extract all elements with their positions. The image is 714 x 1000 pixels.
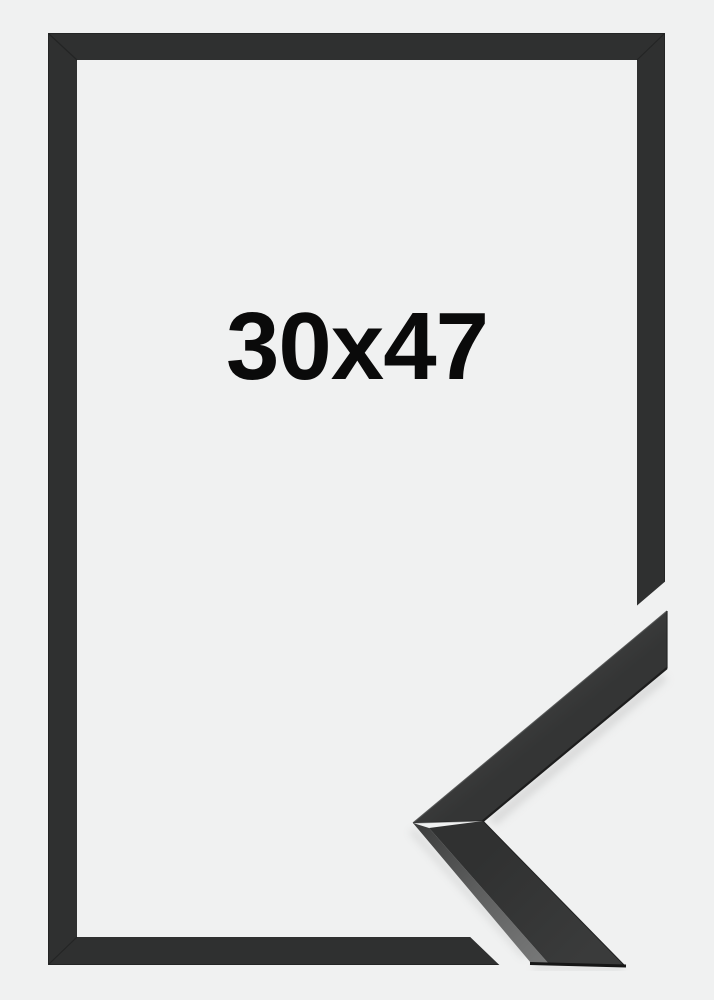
frame-size-label: 30x47 (77, 297, 637, 397)
product-image (0, 0, 714, 1000)
product-photo: 30x47 (0, 0, 714, 1000)
